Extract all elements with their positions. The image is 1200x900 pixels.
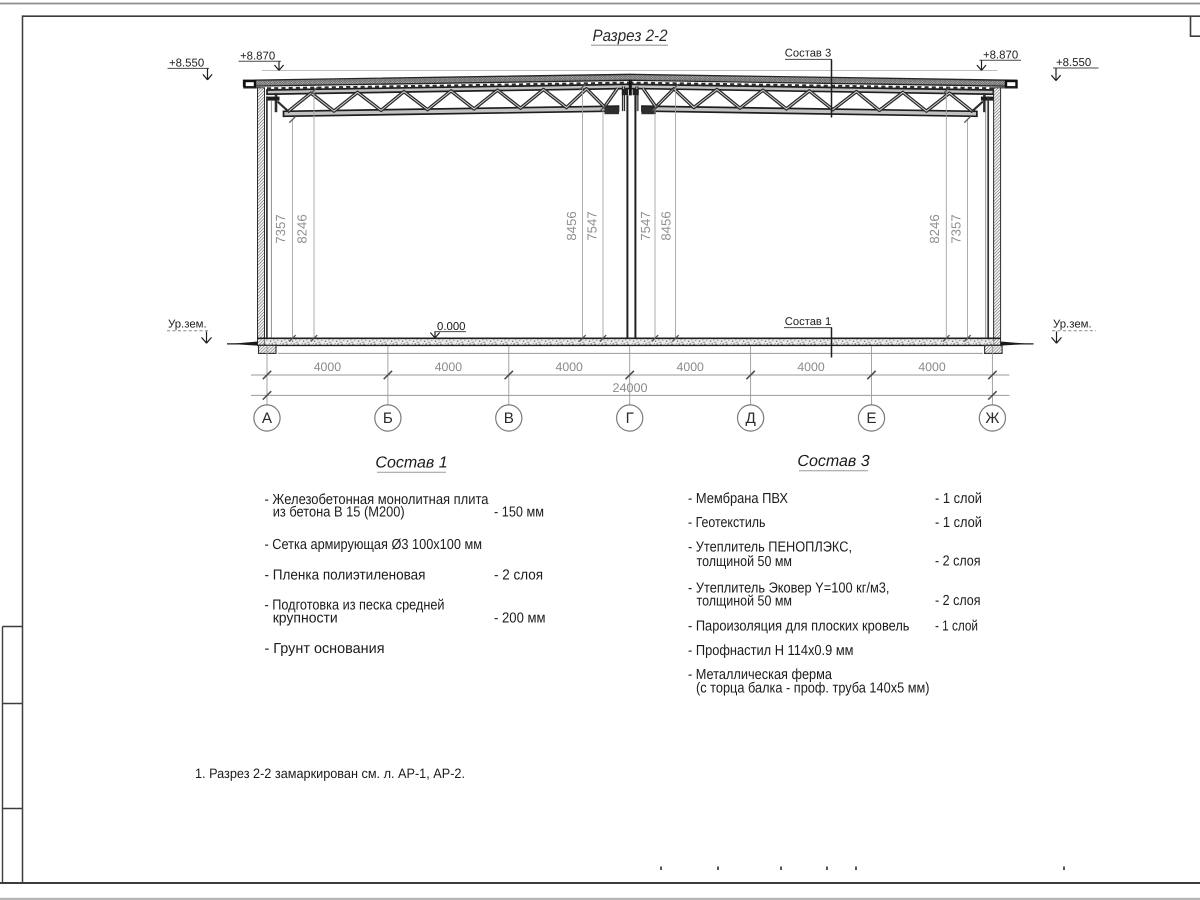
svg-text:Состав 1: Состав 1: [375, 455, 447, 472]
svg-text:- 1 слой: - 1 слой: [935, 515, 982, 531]
svg-text:- 200 мм: - 200 мм: [494, 610, 546, 626]
svg-text:Состав 1: Состав 1: [785, 316, 831, 328]
svg-text:- 2 слоя: - 2 слоя: [935, 553, 981, 569]
svg-text:В: В: [504, 410, 514, 427]
svg-text:8456: 8456: [564, 211, 579, 240]
svg-text:4000: 4000: [314, 360, 342, 374]
svg-text:4000: 4000: [797, 360, 825, 374]
svg-text:+8.870: +8.870: [983, 50, 1018, 62]
svg-text:- Пароизоляция для плоских кро: - Пароизоляция для плоских кровель: [688, 619, 910, 635]
svg-text:толщиной 50 мм: толщиной 50 мм: [697, 594, 793, 610]
svg-text:Б: Б: [383, 410, 393, 427]
svg-text:0.000: 0.000: [437, 321, 466, 333]
svg-text:- 150 мм: - 150 мм: [494, 505, 544, 521]
svg-text:- Геотекстиль: - Геотекстиль: [688, 515, 766, 531]
svg-text:+8.870: +8.870: [240, 51, 275, 63]
svg-text:Ж: Ж: [985, 410, 999, 427]
svg-text:- Мембрана ПВХ: - Мембрана ПВХ: [688, 491, 788, 507]
svg-text:из бетона В 15 (М200): из бетона В 15 (М200): [273, 505, 405, 521]
svg-text:4000: 4000: [918, 360, 946, 374]
svg-text:А: А: [262, 410, 273, 427]
svg-text:+8.550: +8.550: [169, 58, 204, 70]
svg-text:Разрез 2-2: Разрез 2-2: [593, 27, 668, 45]
svg-text:- Грунт основания: - Грунт основания: [265, 641, 385, 657]
svg-text:7357: 7357: [273, 214, 288, 243]
svg-text:7357: 7357: [948, 214, 963, 243]
svg-text:- Пленка полиэтиленовая: - Пленка полиэтиленовая: [265, 567, 426, 583]
svg-text:Ур.зем.: Ур.зем.: [1053, 319, 1092, 331]
svg-text:толщиной 50 мм: толщиной 50 мм: [697, 554, 793, 570]
svg-text:24000: 24000: [612, 381, 647, 395]
svg-text:Состав 3: Состав 3: [797, 453, 869, 470]
svg-text:+8.550: +8.550: [1056, 57, 1091, 69]
svg-text:8456: 8456: [658, 211, 673, 240]
svg-text:4000: 4000: [677, 360, 705, 374]
svg-text:- Сетка армирующая Ø3 100x100: - Сетка армирующая Ø3 100x100 мм: [265, 537, 483, 553]
svg-text:8246: 8246: [294, 214, 309, 243]
svg-text:8246: 8246: [927, 214, 942, 243]
svg-text:Г: Г: [626, 410, 634, 427]
svg-text:7547: 7547: [638, 211, 653, 240]
svg-text:- 1 слой: - 1 слой: [935, 491, 982, 507]
svg-text:Д: Д: [745, 410, 755, 427]
svg-text:- Профнастил Н 114х0.9 мм: - Профнастил Н 114х0.9 мм: [688, 643, 854, 659]
svg-text:Е: Е: [866, 410, 876, 427]
svg-text:4000: 4000: [556, 360, 584, 374]
svg-text:- 2 слоя: - 2 слоя: [494, 567, 543, 583]
svg-text:Ур.зем.: Ур.зем.: [168, 319, 207, 331]
svg-text:- 2 слоя: - 2 слоя: [935, 593, 981, 609]
svg-text:Состав 3: Состав 3: [785, 48, 831, 60]
svg-text:(с торца балка - проф. труба 1: (с торца балка - проф. труба 140х5 мм): [696, 680, 930, 696]
svg-text:1. Разрез 2-2 замаркирован см.: 1. Разрез 2-2 замаркирован см. л. АР-1, …: [195, 766, 465, 781]
svg-text:4000: 4000: [435, 360, 463, 374]
svg-text:- 1 слой: - 1 слой: [935, 619, 978, 635]
svg-text:7547: 7547: [584, 211, 599, 240]
svg-text:крупности: крупности: [273, 611, 338, 627]
